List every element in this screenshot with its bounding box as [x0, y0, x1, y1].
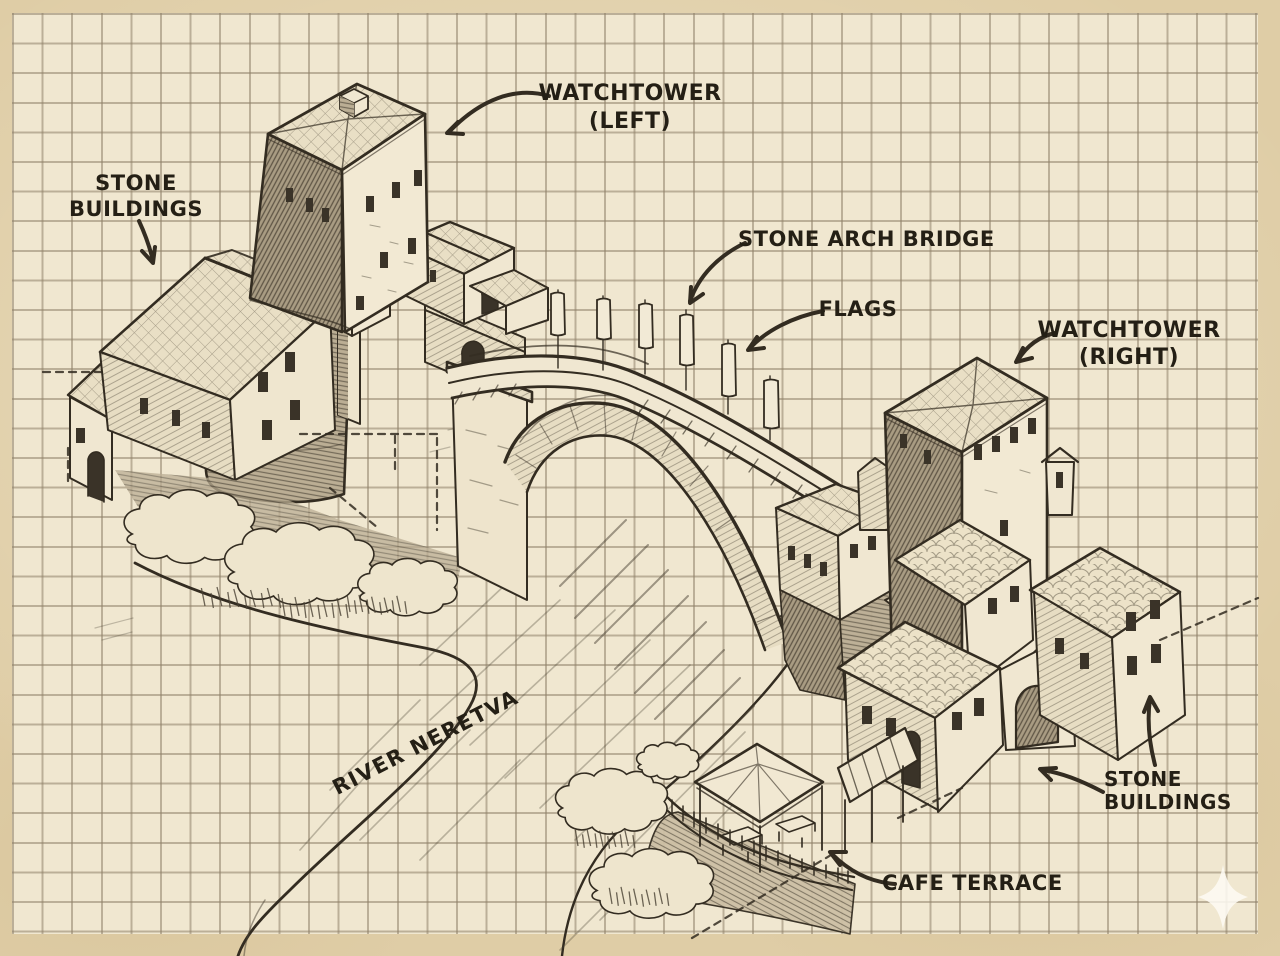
arrow-stone-buildings-left: [139, 221, 155, 263]
label-stone-buildings-right: STONE BUILDINGS: [1104, 768, 1264, 814]
label-line: (RIGHT): [1019, 344, 1239, 371]
arrow-stone-buildings-right-a: [1040, 768, 1103, 792]
label-stone-arch-bridge: STONE ARCH BRIDGE: [738, 226, 968, 252]
label-line: WATCHTOWER: [520, 80, 740, 108]
sparkle-watermark-icon: [1198, 865, 1248, 929]
label-watchtower-right: WATCHTOWER (RIGHT): [1019, 317, 1239, 371]
label-line: WATCHTOWER: [1019, 317, 1239, 344]
arrow-stone-arch-bridge: [690, 243, 745, 303]
label-flags: FLAGS: [798, 296, 918, 322]
label-line: STONE: [1104, 768, 1264, 791]
label-cafe-terrace: CAFE TERRACE: [882, 870, 1062, 896]
sketch-page: { "colors": { "margin": "#dfcda6", "pape…: [0, 0, 1280, 956]
label-line: BUILDINGS: [46, 196, 226, 222]
label-line: STONE: [46, 170, 226, 196]
label-watchtower-left: WATCHTOWER (LEFT): [520, 80, 740, 136]
label-line: (LEFT): [520, 108, 740, 136]
bridge-sketch-drawing: [0, 0, 1280, 956]
label-line: BUILDINGS: [1104, 791, 1264, 814]
right-town-complex: [776, 358, 1185, 812]
label-stone-buildings-left: STONE BUILDINGS: [46, 170, 226, 222]
